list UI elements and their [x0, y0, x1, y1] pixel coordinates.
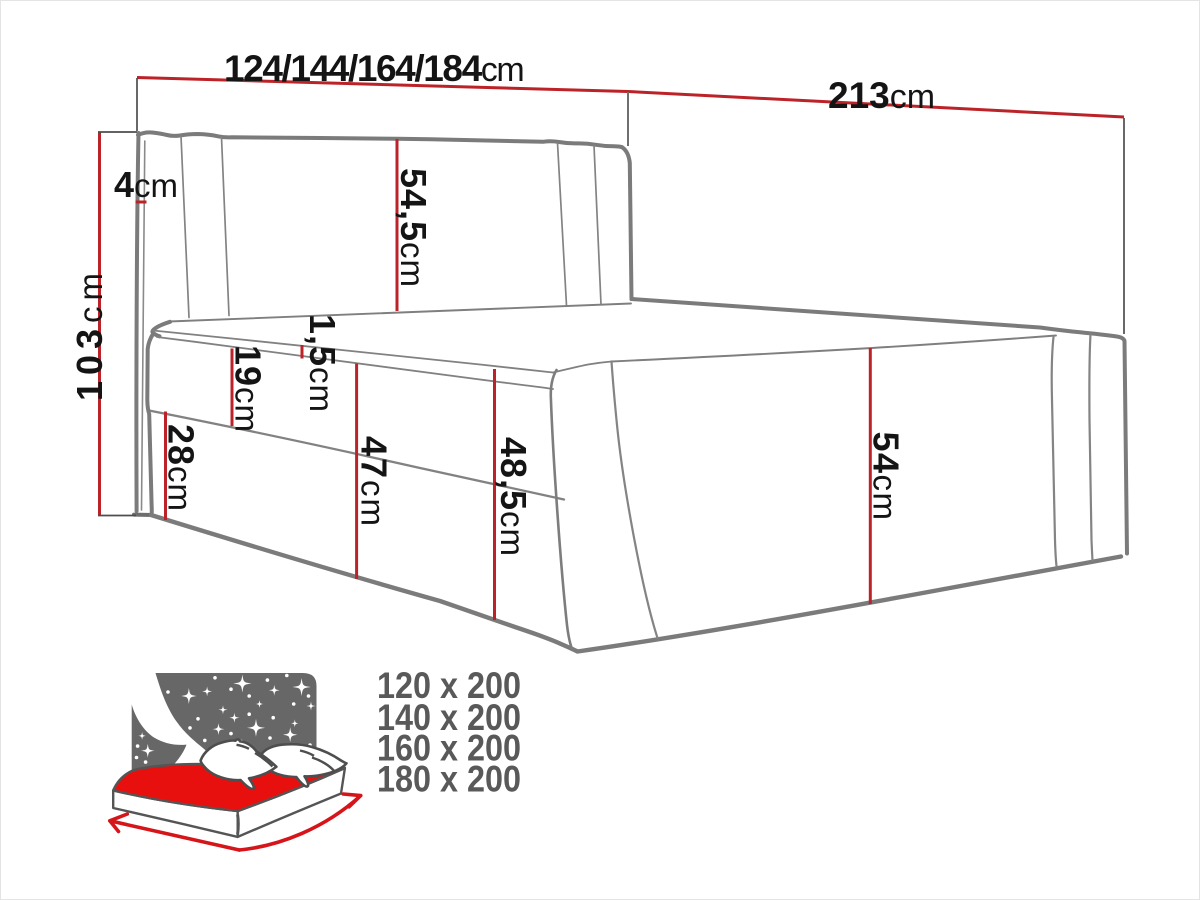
svg-text:19cm: 19cm: [228, 345, 269, 433]
svg-text:47cm: 47cm: [354, 436, 395, 528]
svg-text:28cm: 28cm: [161, 424, 202, 512]
svg-text:124/144/164/184cm: 124/144/164/184cm: [224, 48, 523, 89]
svg-text:213cm: 213cm: [828, 75, 935, 116]
svg-text:180 x 200: 180 x 200: [377, 759, 521, 800]
svg-text:48,5cm: 48,5cm: [493, 437, 534, 557]
svg-text:103cm: 103cm: [69, 267, 110, 401]
svg-text:54,5cm: 54,5cm: [393, 168, 434, 288]
svg-text:54cm: 54cm: [866, 431, 907, 521]
svg-text:1,5cm: 1,5cm: [302, 314, 343, 413]
svg-text:4cm: 4cm: [114, 164, 178, 205]
